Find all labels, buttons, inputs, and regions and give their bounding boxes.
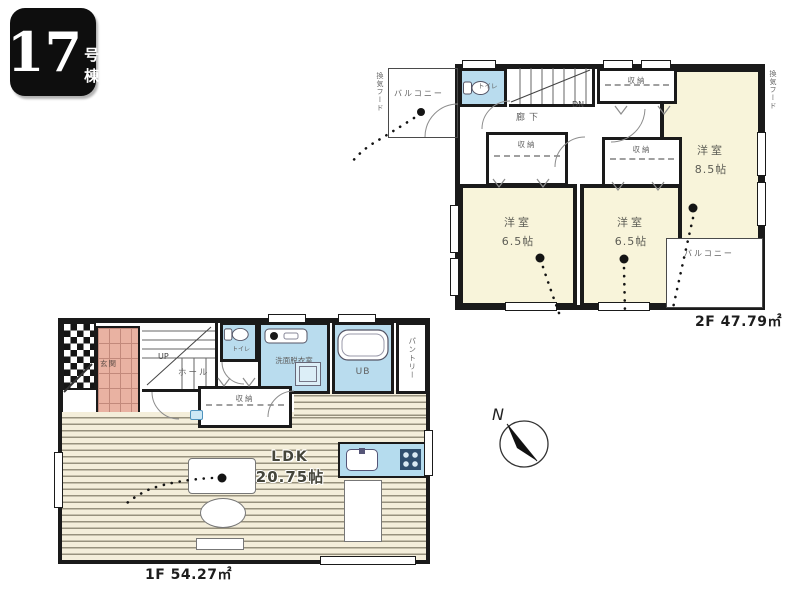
oval-table — [200, 498, 246, 528]
vent-hood-annotation-right: 換気フード — [769, 70, 776, 110]
bathroom-ub: UB — [332, 322, 394, 394]
stove-icon — [400, 449, 421, 470]
closet-hanger-rail — [206, 404, 284, 406]
stairs-down-label: DN — [572, 100, 584, 109]
toilet-1f-label: トイレ — [232, 344, 250, 353]
closet-2f-b-label: 収納 — [605, 144, 679, 155]
closet-2f-a-label: 収納 — [489, 139, 565, 150]
window-mark — [757, 132, 766, 176]
room-western-6-5-a: 洋室 6.5帖 — [459, 184, 577, 307]
closet-2f-top: 収納 — [597, 68, 677, 104]
vent-hood-annotation-left: 換気フード — [376, 72, 383, 112]
toilet-2f-label: トイレ — [478, 80, 498, 90]
window-mark — [450, 258, 459, 296]
stairs-1f — [142, 322, 218, 392]
compass-icon: N — [480, 396, 560, 480]
window-mark — [462, 60, 496, 69]
stairs-steps-icon — [142, 322, 215, 389]
closet-2f-room-a: 収納 — [486, 132, 568, 186]
kitchen-island — [344, 480, 382, 542]
closet-1f-label: 収納 — [201, 393, 289, 404]
entrance-genkan — [96, 326, 140, 414]
ldk-label: LDK 20.75帖 — [240, 449, 340, 487]
window-mark — [268, 314, 306, 323]
balcony-2f-top — [388, 68, 458, 138]
pantry-label: パントリー — [408, 337, 416, 380]
room-western-6-5-b-label: 洋室 6.5帖 — [584, 214, 678, 249]
window-mark — [54, 452, 63, 508]
floorplan-page: 17 号棟 バルコニー 洋室 8.5帖 トイレ — [0, 0, 800, 600]
closet-hanger-rail — [610, 158, 674, 160]
wall-fixture-icon — [190, 410, 203, 420]
closet-2f-top-label: 収納 — [600, 75, 674, 86]
pantry: パントリー — [396, 322, 428, 394]
sink-icon — [264, 328, 308, 344]
balcony-2f-top-label: バルコニー — [394, 88, 444, 99]
window-mark — [641, 60, 671, 69]
bathtub-icon — [337, 329, 389, 361]
window-mark — [505, 302, 557, 311]
closet-hanger-rail — [494, 155, 560, 157]
bath-label: UB — [335, 367, 391, 377]
stairs-steps-icon — [509, 68, 592, 104]
low-table — [196, 538, 244, 550]
hallway-label: 廊下 — [516, 110, 542, 123]
window-mark — [338, 314, 376, 323]
toilet-room-1f — [220, 322, 258, 362]
window-mark — [598, 302, 650, 311]
stairs-up-label: UP — [158, 352, 169, 361]
compass-north-label: N — [492, 405, 504, 424]
toilet-icon — [223, 325, 251, 344]
balcony-2f-bottom-label: バルコニー — [684, 248, 734, 259]
room-western-6-5-a-label: 洋室 6.5帖 — [463, 214, 573, 249]
window-mark — [450, 205, 459, 253]
hall-label: ホール — [178, 366, 210, 378]
floor-1-area-label: 1F 54.27㎡ — [145, 564, 232, 584]
closet-1f: 収納 — [198, 386, 292, 428]
window-mark — [320, 556, 416, 565]
window-mark — [603, 60, 633, 69]
washroom: 洗面脱衣室 — [258, 322, 330, 394]
kitchen-counter — [338, 442, 428, 478]
entrance-label: 玄関 — [100, 358, 117, 369]
window-mark — [757, 182, 766, 226]
entrance-porch-tiles — [62, 322, 96, 390]
kitchen-sink-icon — [346, 449, 378, 471]
window-mark — [424, 430, 433, 476]
closet-2f-room-b: 収納 — [602, 137, 682, 187]
washing-machine-icon — [295, 362, 321, 386]
